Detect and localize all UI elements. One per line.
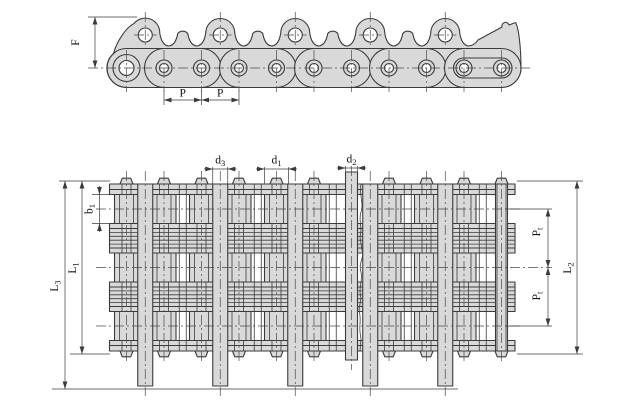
dim-label-Pt-upper: Pt — [531, 227, 545, 236]
top-outer-plate-edge — [110, 184, 516, 190]
dim-label-d3: d3 — [215, 155, 225, 169]
side-elevation-view: F P P — [70, 12, 531, 105]
dim-label-P-right: P — [217, 88, 223, 100]
bottom-outer-plate-edge — [110, 346, 516, 352]
dimension-P: P P — [164, 88, 239, 106]
dim-label-Pt-lower: Pt — [531, 291, 545, 300]
dim-label-d2: d2 — [347, 154, 357, 168]
dim-label-L1: L1 — [67, 262, 81, 273]
dim-label-P-left: P — [180, 88, 186, 100]
dim-label-b1: b1 — [84, 204, 98, 214]
dim-label-L3: L3 — [49, 280, 63, 291]
dim-label-F: F — [70, 39, 82, 45]
intermediate-plate-stack — [110, 287, 516, 307]
plan-view: d3 d1 d2 b1 — [49, 154, 583, 397]
technical-drawing-page: F P P — [0, 0, 636, 410]
dim-label-L2: L2 — [562, 262, 576, 273]
intermediate-plate-stack — [110, 229, 516, 249]
dim-label-d1: d1 — [272, 155, 282, 169]
chain-engineering-drawing: F P P — [0, 0, 636, 410]
